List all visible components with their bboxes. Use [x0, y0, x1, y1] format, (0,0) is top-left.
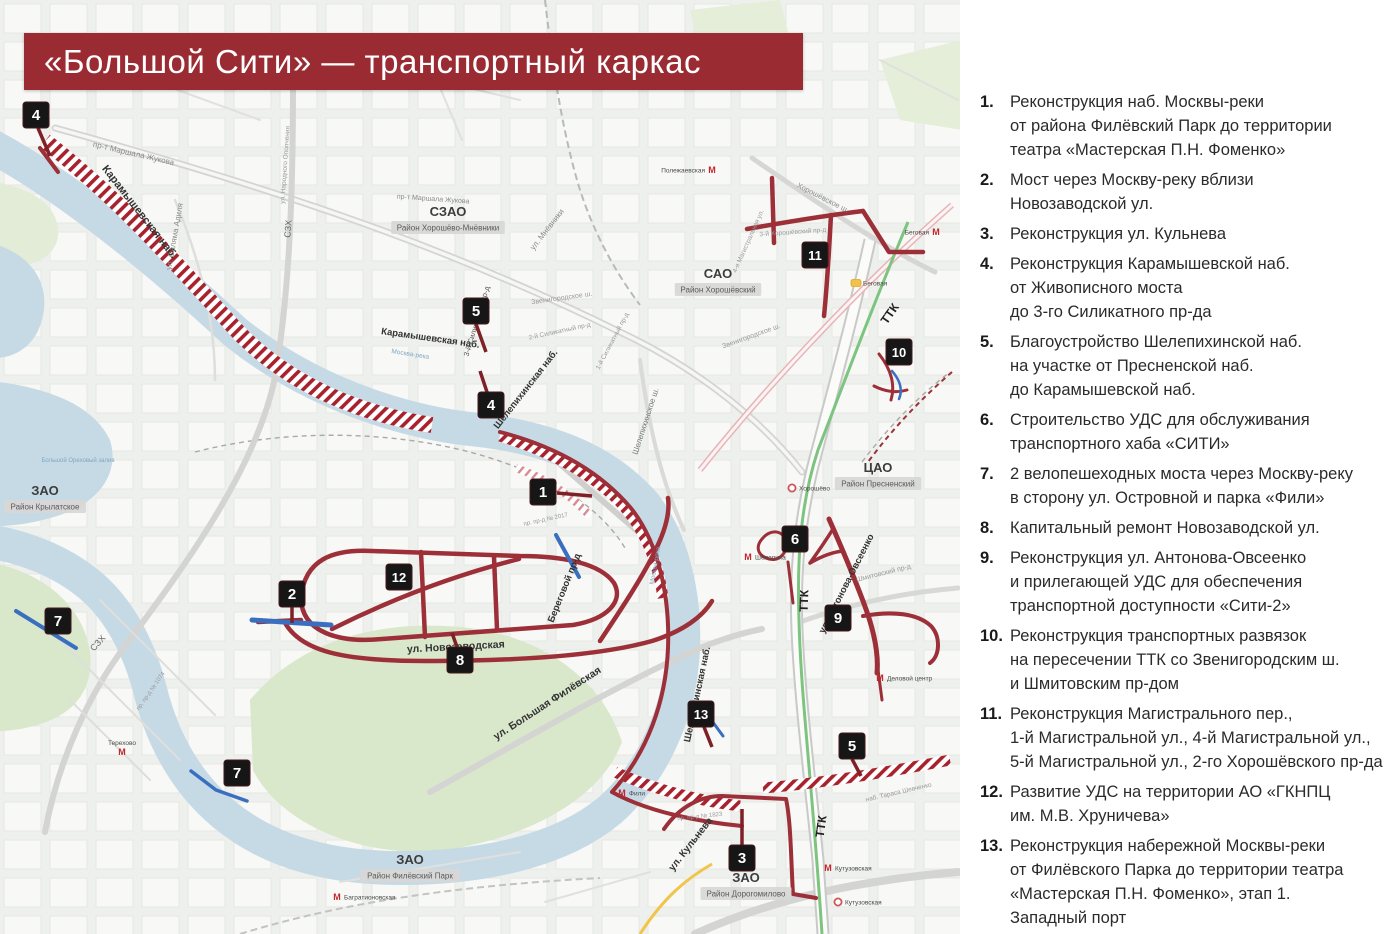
map-marker-1: 1: [530, 479, 556, 505]
map-marker-13: 13: [688, 701, 714, 727]
legend-item-number: 11.: [980, 702, 1010, 774]
station-d2: Беговая: [851, 280, 888, 288]
legend-item-text: 2 велопешеходных моста через Москву-реку…: [1010, 462, 1353, 510]
legend-item-13: 13.Реконструкция набережной Москвы-реки …: [980, 834, 1386, 930]
station-mcc: Хорошёво: [788, 484, 830, 492]
station-name: Терехово: [108, 740, 136, 747]
legend-item-number: 6.: [980, 408, 1010, 456]
legend-item-5: 5.Благоустройство Шелепихинской наб. на …: [980, 330, 1386, 402]
marker-number: 1: [539, 484, 547, 501]
mcc-station-icon: [788, 484, 795, 491]
station-name: Беговая: [905, 230, 930, 237]
district-name: Район Хорошёво-Мнёвники: [397, 224, 499, 233]
station-name: Шелепиха: [755, 555, 786, 562]
marker-number: 5: [848, 738, 856, 755]
marker-number: 6: [791, 531, 799, 548]
okrug-name: ЗАО: [396, 852, 423, 867]
legend-item-text: Развитие УДС на территории АО «ГКНПЦ им.…: [1010, 780, 1330, 828]
page-title: «Большой Сити» — транспортный каркас: [44, 43, 701, 81]
legend-item-text: Капитальный ремонт Новозаводской ул.: [1010, 516, 1320, 540]
legend-item-number: 13.: [980, 834, 1010, 930]
city-map: Карамышевская наб.Карамышевская наб.пр-т…: [0, 0, 962, 934]
legend-item-number: 2.: [980, 168, 1010, 216]
legend-item-8: 8.Капитальный ремонт Новозаводской ул.: [980, 516, 1386, 540]
legend-item-number: 12.: [980, 780, 1010, 828]
marker-number: 3: [738, 850, 746, 867]
legend-item-4: 4.Реконструкция Карамышевской наб. от Жи…: [980, 252, 1386, 324]
map-marker-7: 7: [45, 608, 71, 634]
okrug-name: САО: [704, 266, 732, 281]
legend-item-6: 6.Строительство УДС для обслуживания тра…: [980, 408, 1386, 456]
legend-item-11: 11.Реконструкция Магистрального пер., 1-…: [980, 702, 1386, 774]
metro-icon: М: [824, 863, 832, 873]
map-marker-11: 11: [802, 242, 828, 268]
metro-icon: М: [708, 165, 716, 175]
marker-number: 4: [32, 107, 41, 124]
legend-item-12: 12.Развитие УДС на территории АО «ГКНПЦ …: [980, 780, 1386, 828]
legend-item-text: Реконструкция Магистрального пер., 1-й М…: [1010, 702, 1383, 774]
okrug-name: ЗАО: [31, 483, 58, 498]
legend-item-number: 1.: [980, 90, 1010, 162]
legend-item-text: Мост через Москву-реку вблизи Новозаводс…: [1010, 168, 1254, 216]
marker-number: 7: [233, 765, 241, 782]
legend-item-text: Строительство УДС для обслуживания транс…: [1010, 408, 1310, 456]
title-banner: «Большой Сити» — транспортный каркас: [24, 33, 803, 90]
station-name: Кутузовская: [835, 866, 872, 873]
station-name: Багратионовская: [344, 895, 396, 902]
legend-item-7: 7.2 велопешеходных моста через Москву-ре…: [980, 462, 1386, 510]
legend-item-number: 7.: [980, 462, 1010, 510]
district-name: Район Дорогомилово: [707, 890, 786, 899]
map-marker-2: 2: [279, 581, 305, 607]
street-label: СЗХ: [282, 220, 293, 238]
infographic-slide: Карамышевская наб.Карамышевская наб.пр-т…: [0, 0, 1400, 934]
legend-item-text: Реконструкция наб. Москвы-реки от района…: [1010, 90, 1332, 162]
metro-icon: М: [618, 788, 626, 798]
okrug-name: СЗАО: [430, 204, 467, 219]
station-name: Деловой центр: [887, 675, 933, 683]
marker-number: 8: [456, 652, 464, 669]
legend-item-2: 2.Мост через Москву-реку вблизи Новозаво…: [980, 168, 1386, 216]
map-marker-9: 9: [825, 605, 851, 631]
district-name: Район Крылатское: [11, 503, 80, 512]
map-marker-4: 4: [23, 102, 49, 128]
map-marker-7: 7: [224, 760, 250, 786]
map-marker-12: 12: [386, 564, 412, 590]
legend-item-text: Реконструкция транспортных развязок на п…: [1010, 624, 1340, 696]
metro-icon: М: [118, 747, 126, 757]
station-name: Фили: [629, 791, 645, 798]
map-marker-3: 3: [729, 845, 755, 871]
legend-item-text: Благоустройство Шелепихинской наб. на уч…: [1010, 330, 1302, 402]
okrug-name: ЗАО: [732, 870, 759, 885]
legend-item-10: 10.Реконструкция транспортных развязок н…: [980, 624, 1386, 696]
marker-number: 9: [834, 610, 842, 627]
district-name: Район Пресненский: [841, 480, 914, 489]
okrug-name: ЦАО: [864, 460, 893, 475]
map-marker-4: 4: [478, 392, 504, 418]
station-name: Хорошёво: [799, 486, 830, 493]
district-name: Район Хорошёвский: [680, 286, 755, 295]
map-marker-8: 8: [447, 647, 473, 673]
metro-icon: М: [333, 892, 341, 902]
station-name: Беговая: [863, 281, 888, 288]
d2-station-icon: [851, 280, 861, 287]
street-label: ТТК: [797, 589, 812, 612]
mcc-station-icon: [834, 898, 841, 905]
legend-item-number: 5.: [980, 330, 1010, 402]
metro-icon: М: [744, 552, 752, 562]
legend-item-9: 9.Реконструкция ул. Антонова-Овсеенко и …: [980, 546, 1386, 618]
district-name: Район Филёвский Парк: [367, 872, 453, 881]
marker-number: 13: [694, 707, 708, 722]
station-name: Кутузовская: [845, 900, 882, 907]
legend-item-text: Реконструкция ул. Антонова-Овсеенко и пр…: [1010, 546, 1306, 618]
map-marker-5: 5: [839, 733, 865, 759]
legend-item-number: 4.: [980, 252, 1010, 324]
map-marker-5: 5: [463, 298, 489, 324]
legend-item-number: 3.: [980, 222, 1010, 246]
marker-number: 11: [808, 248, 822, 263]
metro-icon: М: [876, 673, 884, 683]
legend-item-number: 9.: [980, 546, 1010, 618]
marker-number: 10: [892, 345, 906, 360]
legend-item-text: Реконструкция набережной Москвы-реки от …: [1010, 834, 1343, 930]
marker-number: 5: [472, 303, 480, 320]
marker-number: 2: [288, 586, 296, 603]
legend-item-number: 8.: [980, 516, 1010, 540]
metro-icon: М: [932, 227, 940, 237]
marker-number: 7: [54, 613, 62, 630]
marker-number: 12: [392, 570, 406, 585]
legend-item-text: Реконструкция ул. Кульнева: [1010, 222, 1226, 246]
legend-item-1: 1.Реконструкция наб. Москвы-реки от райо…: [980, 90, 1386, 162]
legend-item-text: Реконструкция Карамышевской наб. от Живо…: [1010, 252, 1290, 324]
map-marker-6: 6: [782, 526, 808, 552]
legend-item-3: 3.Реконструкция ул. Кульнева: [980, 222, 1386, 246]
street-label: Большой Ореховый залив: [41, 457, 114, 464]
legend-item-number: 10.: [980, 624, 1010, 696]
legend-panel: 1.Реконструкция наб. Москвы-реки от райо…: [960, 0, 1400, 934]
station-name: Полежаевская: [661, 168, 705, 175]
map-marker-10: 10: [886, 339, 912, 365]
marker-number: 4: [487, 397, 496, 414]
